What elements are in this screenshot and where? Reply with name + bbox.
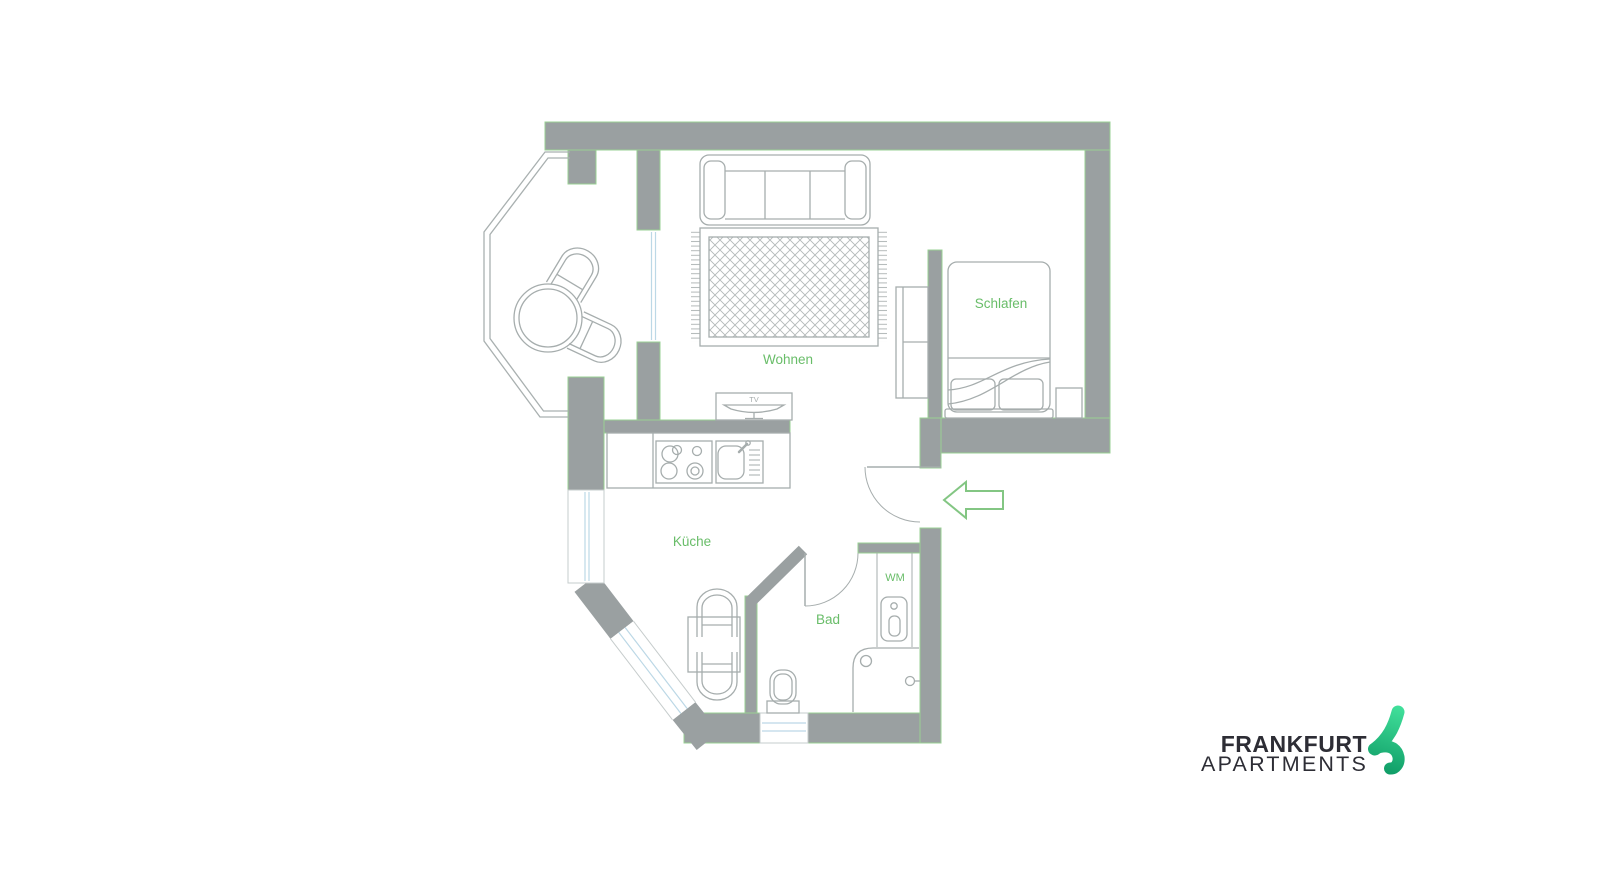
- wall-segment-right: [1085, 150, 1110, 453]
- wall-stub-bay-bottom: [637, 342, 660, 420]
- wall-kitchen-living-divider: [604, 420, 790, 433]
- wall-segment-top: [545, 122, 1110, 150]
- kitchen-diagonal-window: [611, 621, 696, 720]
- toilet: [767, 670, 799, 713]
- sofa: [700, 155, 870, 225]
- kitchen-counter: [607, 433, 790, 488]
- wall-stub-topleft: [568, 150, 596, 184]
- bed: [945, 262, 1053, 418]
- room-label-bathroom: Bad: [816, 612, 840, 627]
- wall-diagonal-lower: [684, 711, 708, 741]
- label-washing-machine: WM: [885, 572, 905, 584]
- nightstand: [1056, 388, 1082, 418]
- wall-bedroom-divider: [928, 250, 942, 418]
- bathroom-window: [760, 713, 808, 743]
- wall-diagonal-upper: [586, 583, 622, 630]
- sink: [716, 441, 763, 483]
- floor-plan-canvas: Wohnen Schlafen Küche Bad WM TV FRANKFUR…: [0, 0, 1600, 880]
- wall-kitchen-left: [568, 377, 604, 490]
- bay-chair-bottom: [567, 312, 627, 369]
- room-label-living: Wohnen: [763, 352, 813, 367]
- wall-stub-bay-top: [637, 150, 660, 230]
- bay-chair-top: [546, 241, 605, 303]
- kitchen-chair-top: [697, 589, 737, 637]
- label-tv: TV: [749, 395, 759, 404]
- floor-plan-page: Wohnen Schlafen Küche Bad WM TV FRANKFUR…: [0, 0, 1600, 880]
- room-label-bedroom: Schlafen: [975, 296, 1028, 311]
- wall-entry-lower: [920, 528, 941, 743]
- washing-machine: [877, 553, 912, 647]
- logo-leaf-icon: [1374, 712, 1399, 769]
- bay-window-outline: [484, 152, 570, 417]
- bathroom-door: [805, 553, 858, 606]
- bay-living-window: [652, 232, 656, 340]
- room-label-kitchen: Küche: [673, 534, 711, 549]
- pillow: [951, 379, 995, 410]
- brand-logo: FRANKFURT APARTMENTS: [1201, 712, 1399, 776]
- logo-text-line2: APARTMENTS: [1201, 752, 1368, 776]
- bay-dining-table: [514, 284, 582, 352]
- wall-bath-diagonal: [751, 550, 803, 601]
- wall-bath-top: [858, 543, 920, 553]
- kitchen-chair-bottom: [697, 652, 737, 700]
- wall-bedroom-bottom: [941, 418, 1110, 453]
- entrance-door: [865, 467, 941, 522]
- rug: [691, 228, 887, 346]
- pillow: [999, 379, 1043, 410]
- wall-entry-upper: [920, 418, 941, 468]
- shower: [853, 648, 920, 712]
- kitchen-left-window: [568, 490, 604, 583]
- entrance-arrow-icon: [944, 482, 1003, 518]
- wall-bath-left: [745, 596, 757, 713]
- sideboard: [896, 287, 928, 398]
- stove: [656, 441, 712, 483]
